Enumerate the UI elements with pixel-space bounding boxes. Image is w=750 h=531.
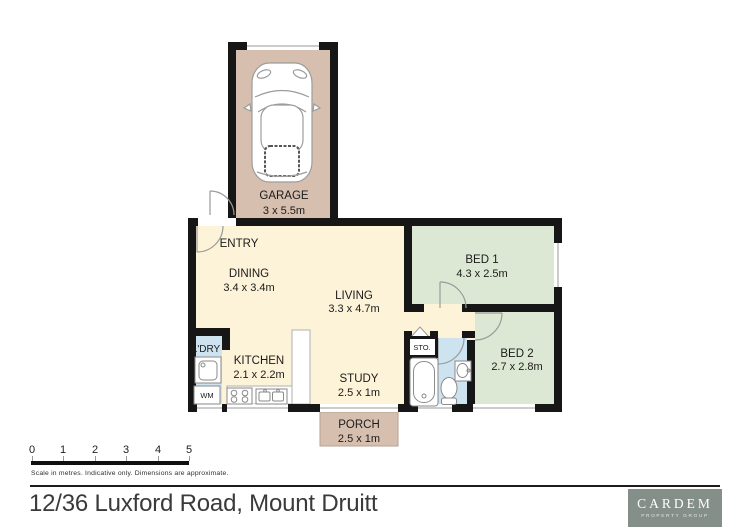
scale-tick-label: 1 — [60, 444, 66, 456]
room-dims-living: 3.3 x 4.7m — [328, 303, 379, 315]
brand-tagline: PROPERTY GROUP — [628, 514, 722, 519]
washing-machine-label: WM — [200, 391, 213, 400]
laundry-tub-icon — [195, 357, 221, 383]
wall-right-lower — [554, 287, 562, 412]
kitchen-sink-icon — [256, 389, 287, 404]
room-dims-porch: 2.5 x 1m — [338, 433, 380, 445]
divider-line — [30, 485, 720, 487]
wall-bottom-seg — [222, 404, 227, 412]
brand-logo: CARDEM PROPERTY GROUP — [628, 489, 722, 527]
room-dims-garage: 3 x 5.5m — [263, 205, 305, 217]
wall-top — [236, 218, 562, 226]
stove-icon — [227, 388, 252, 404]
kitchen-fixtures — [227, 388, 287, 404]
bathtub-icon — [410, 358, 438, 406]
room-label-storage: STO. — [413, 343, 430, 352]
room-label-kitchen: KITCHEN — [234, 355, 284, 367]
wall-bed1-bed2 — [462, 304, 554, 312]
wall-bottom-seg — [288, 404, 320, 412]
room-label-garage: GARAGE — [259, 190, 309, 202]
room-dims-dining: 3.4 x 3.4m — [223, 282, 274, 294]
wall-right-upper — [554, 218, 562, 243]
kitchen-peninsula — [292, 330, 310, 404]
scale-caption: Scale in metres. Indicative only. Dimens… — [31, 470, 229, 477]
scale-tick-label: 5 — [186, 444, 192, 456]
floorplan-page: GARAGE 3 x 5.5m ENTRY DINING 3.4 x 3.4m … — [0, 0, 750, 531]
floorplan: GARAGE 3 x 5.5m ENTRY DINING 3.4 x 3.4m … — [0, 0, 750, 531]
wall-laundry-top — [188, 328, 230, 336]
basin-icon — [455, 361, 471, 381]
address-title: 12/36 Luxford Road, Mount Druitt — [29, 490, 377, 518]
wall-living-bed1 — [404, 226, 412, 304]
room-label-bed1: BED 1 — [465, 254, 498, 266]
room-label-study: STUDY — [340, 373, 379, 385]
room-label-laundry: L'DRY — [192, 344, 221, 355]
room-label-entry: ENTRY — [220, 238, 259, 250]
wall-garage-left — [228, 42, 236, 218]
room-label-living: LIVING — [335, 290, 373, 302]
scale-tick-label: 3 — [123, 444, 129, 456]
scale-tick-label: 0 — [29, 444, 35, 456]
scale-bar-line — [31, 461, 189, 465]
room-label-bed2: BED 2 — [500, 348, 533, 360]
wall-bottom-seg — [188, 404, 197, 412]
toilet-icon — [441, 378, 457, 405]
brand-name: CARDEM — [628, 496, 722, 512]
wall-bottom-seg — [535, 404, 562, 412]
room-dims-bed2: 2.7 x 2.8m — [491, 361, 542, 373]
wall-garage-right — [330, 42, 338, 226]
wall-laundry-stub — [222, 336, 230, 350]
wall-bath-top — [462, 331, 475, 338]
room-label-dining: DINING — [229, 268, 269, 280]
wall-bed1-bottom — [404, 304, 424, 312]
scale-tick-label: 4 — [155, 444, 161, 456]
room-dims-bed1: 4.3 x 2.5m — [456, 268, 507, 280]
room-label-porch: PORCH — [338, 419, 380, 431]
scale-tick-label: 2 — [92, 444, 98, 456]
room-dims-study: 2.5 x 1m — [338, 387, 380, 399]
scale-tick-mark — [189, 456, 190, 461]
car-icon — [244, 63, 320, 182]
wall-top-stub — [188, 218, 198, 226]
wall-bottom-seg — [452, 404, 473, 412]
room-dims-kitchen: 2.1 x 2.2m — [233, 369, 284, 381]
